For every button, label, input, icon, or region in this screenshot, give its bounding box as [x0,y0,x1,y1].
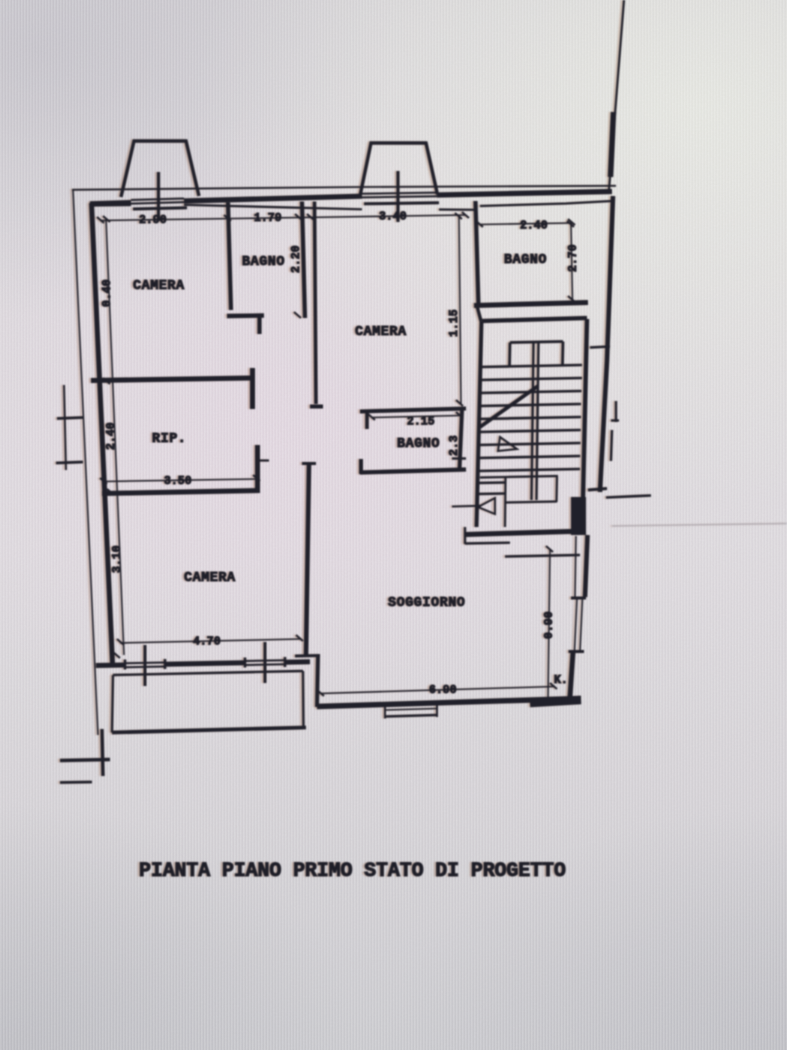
svg-text:SOGGIORNO: SOGGIORNO [388,596,465,611]
svg-text:BAGNO: BAGNO [504,253,547,268]
svg-text:0.90: 0.90 [543,611,556,639]
svg-text:3.40: 3.40 [379,211,407,224]
svg-text:RIP.: RIP. [152,432,186,447]
svg-text:2.20: 2.20 [290,245,303,273]
svg-text:2.40: 2.40 [520,220,548,233]
svg-text:4.70: 4.70 [193,636,221,649]
svg-text:3.10: 3.10 [111,545,124,573]
svg-text:2.70: 2.70 [567,244,580,272]
svg-text:2.15: 2.15 [407,416,435,429]
svg-text:BAGNO: BAGNO [242,255,285,270]
svg-text:2.40: 2.40 [105,422,118,450]
svg-text:2.90: 2.90 [139,214,167,227]
svg-text:6.90: 6.90 [429,684,457,697]
svg-text:CAMERA: CAMERA [133,279,185,294]
svg-text:1.79: 1.79 [254,212,282,225]
svg-text:1.15: 1.15 [448,309,461,337]
svg-text:3.50: 3.50 [164,475,192,488]
svg-text:CAMERA: CAMERA [184,571,236,586]
svg-text:PIANTA PIANO PRIMO STATO DI PR: PIANTA PIANO PRIMO STATO DI PROGETTO [139,860,566,883]
svg-text:K.: K. [554,674,568,687]
svg-text:BAGNO: BAGNO [397,437,440,452]
svg-text:CAMERA: CAMERA [355,325,407,340]
svg-text:0.40: 0.40 [101,279,114,307]
